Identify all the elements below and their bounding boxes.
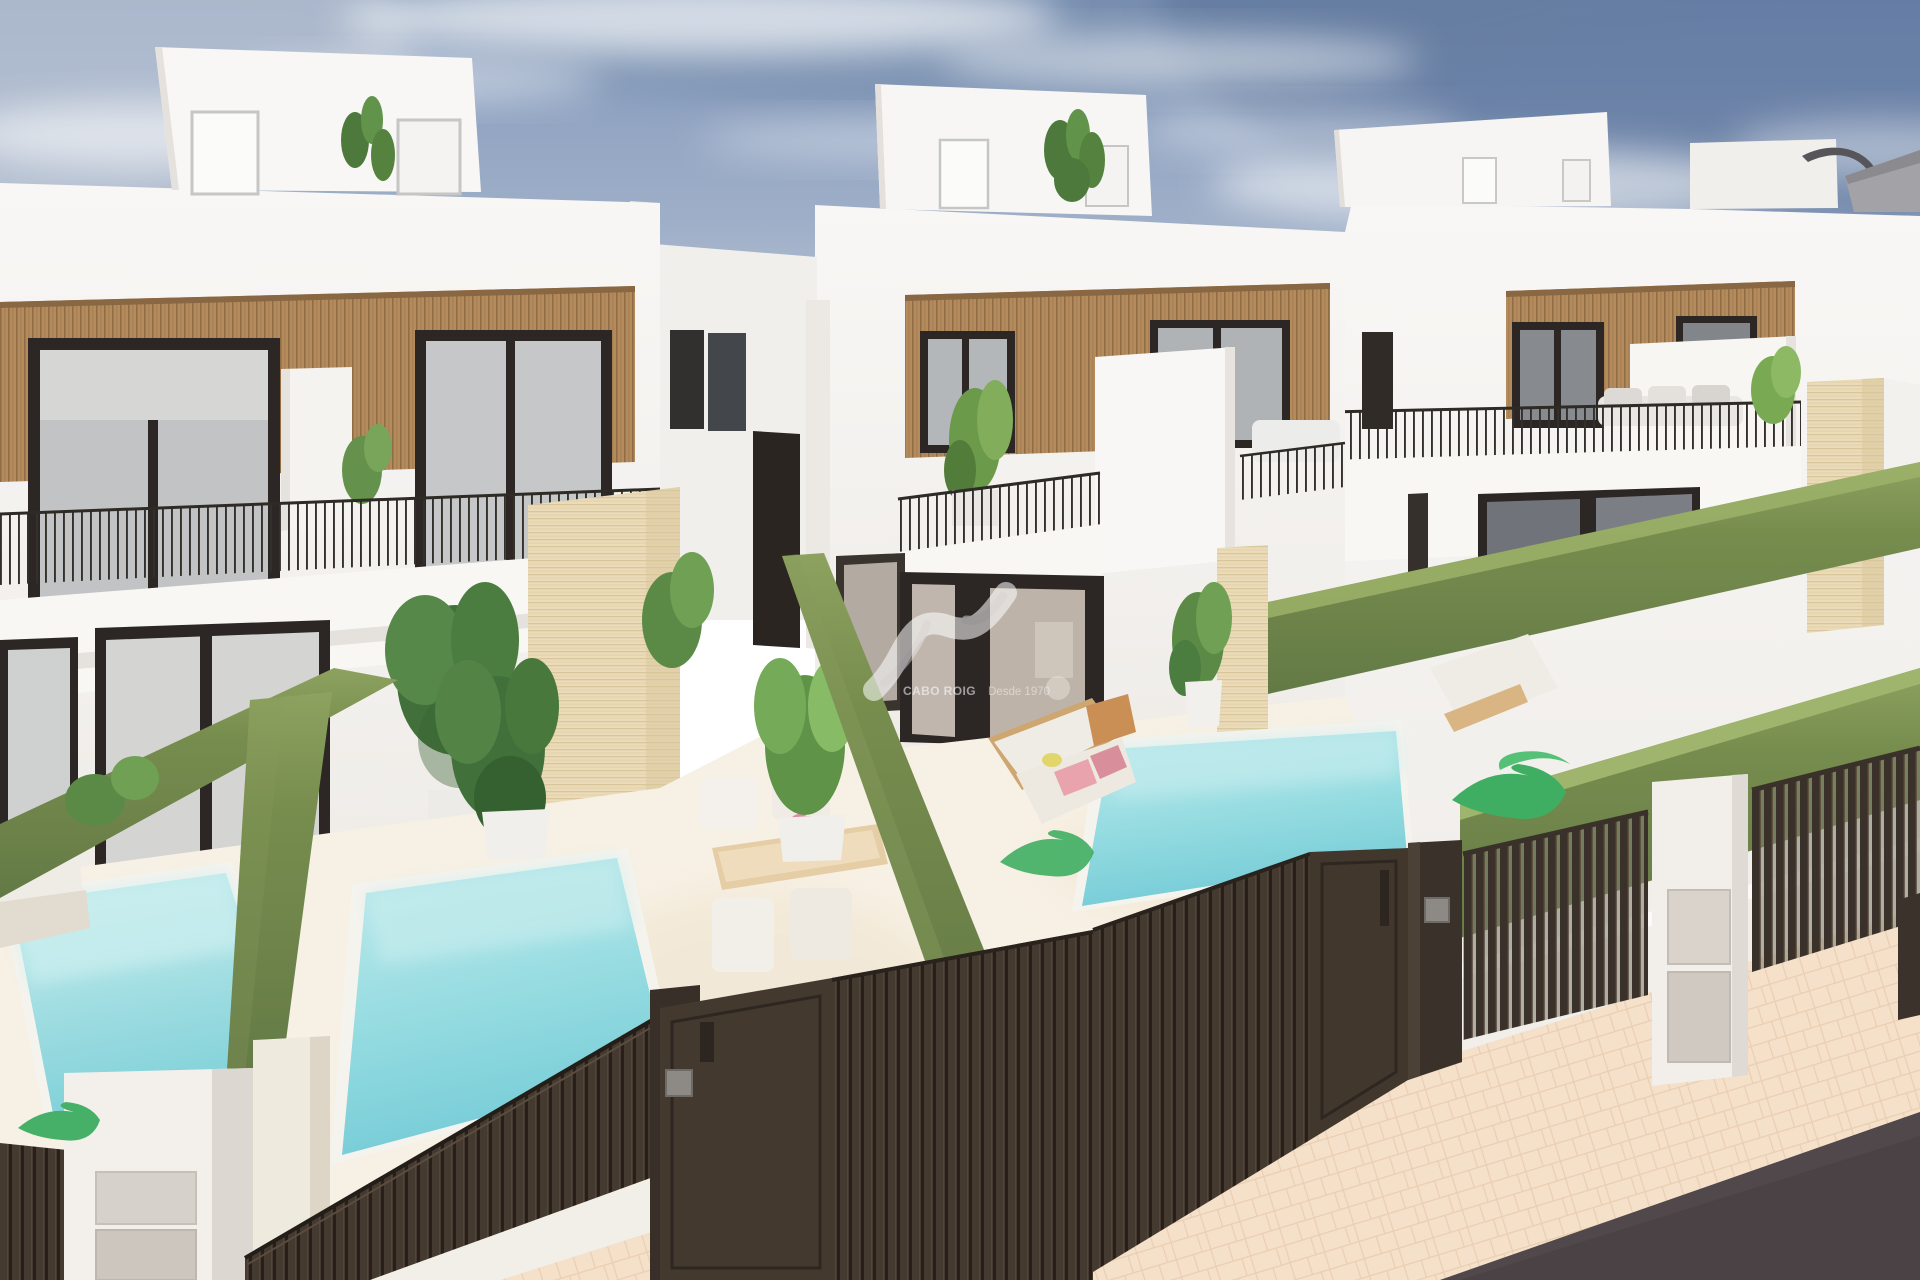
svg-text:CABO ROIG: CABO ROIG — [903, 684, 976, 698]
svg-text:Desde 1970: Desde 1970 — [988, 686, 1050, 698]
